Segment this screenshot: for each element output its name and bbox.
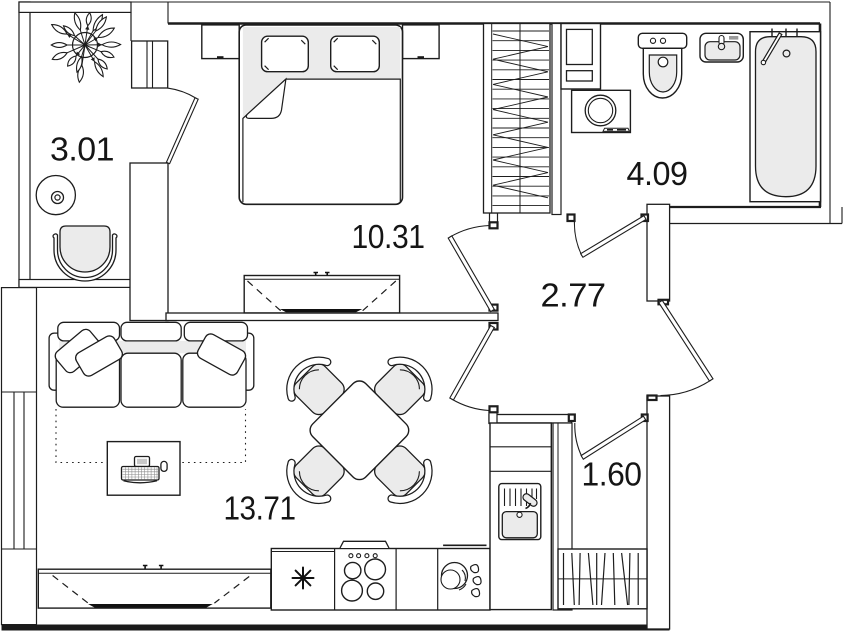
- svg-text:2.77: 2.77: [541, 277, 606, 314]
- svg-text:10.31: 10.31: [352, 218, 425, 255]
- svg-text:1.60: 1.60: [582, 456, 642, 493]
- svg-text:4.09: 4.09: [627, 155, 688, 192]
- svg-text:3.01: 3.01: [50, 131, 114, 168]
- svg-text:13.71: 13.71: [224, 490, 296, 527]
